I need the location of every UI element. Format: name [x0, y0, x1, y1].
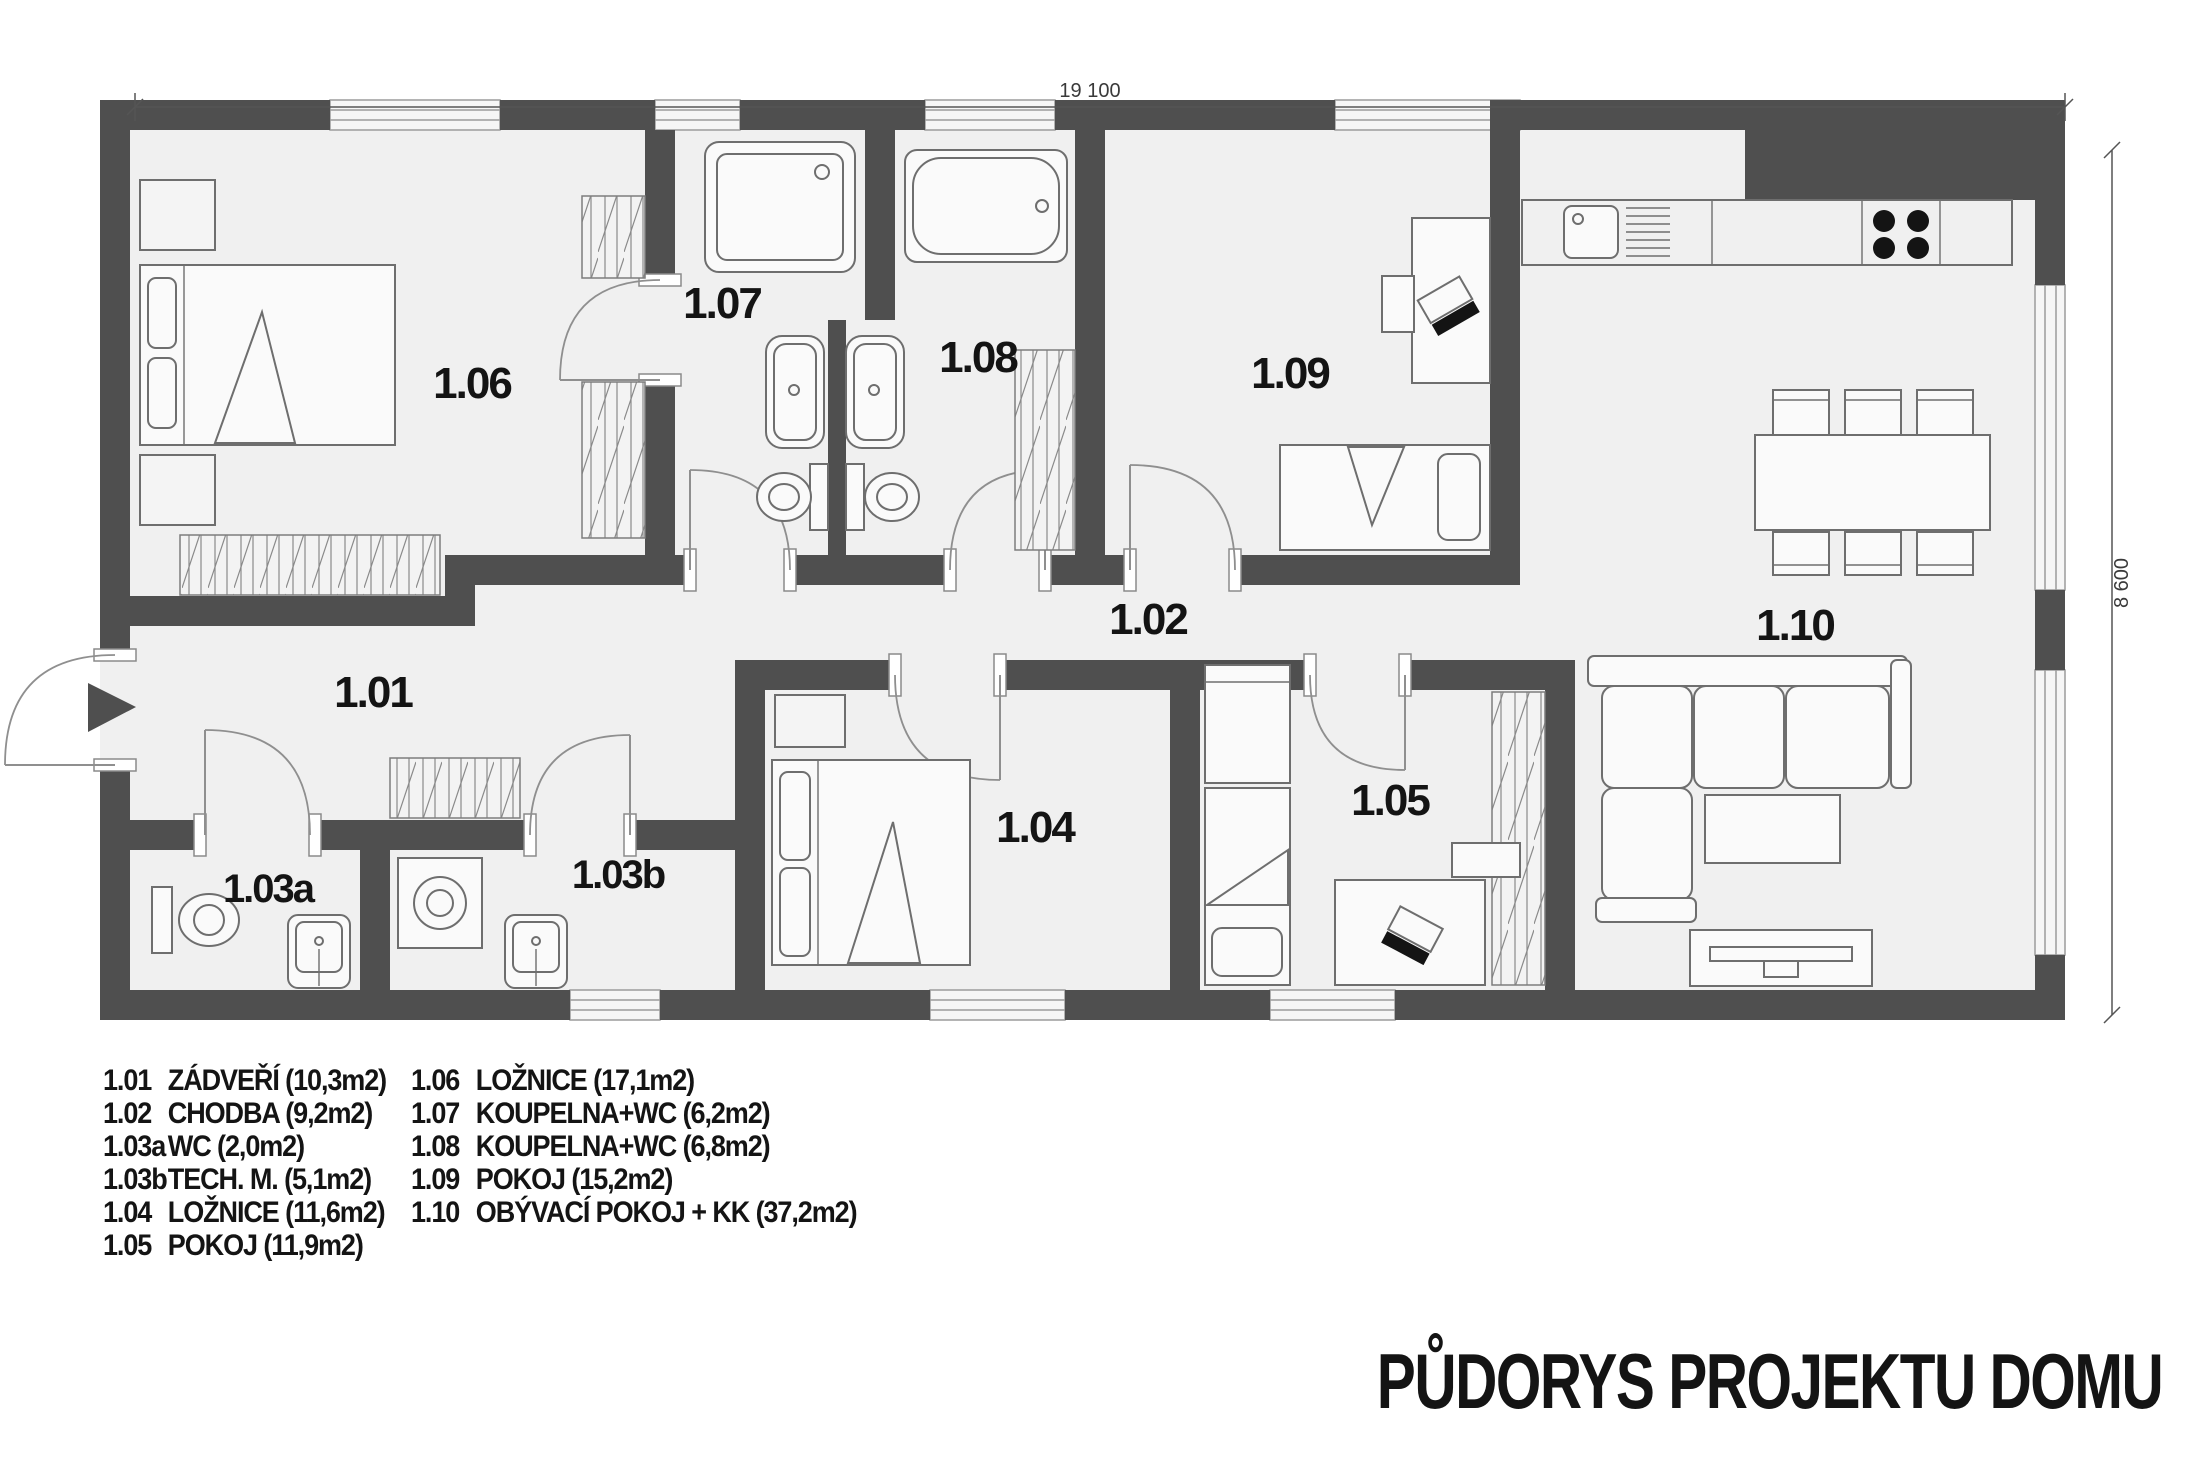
- room-label-1-05: 1.05: [1351, 776, 1430, 825]
- wardrobe-icon: [582, 196, 645, 278]
- legend-code: 1.10: [411, 1196, 476, 1230]
- chair-icon: [1845, 390, 1901, 435]
- dimension-width-label: 19 100: [1059, 80, 1120, 102]
- chair-icon: [1917, 532, 1973, 575]
- floorplan-page: 1.01 1.02 1.03a 1.03b 1.04 1.05 1.06 1.0…: [0, 0, 2190, 1460]
- legend-text: OBÝVACÍ POKOJ + KK (37,2m2): [476, 1196, 857, 1230]
- coffee-table-icon: [1705, 795, 1840, 863]
- room-label-1-07: 1.07: [683, 279, 761, 328]
- nightstand-icon: [775, 695, 845, 747]
- legend-text: KOUPELNA+WC (6,2m2): [476, 1097, 770, 1131]
- bathtub-icon: [905, 150, 1067, 262]
- kitchen-sink-icon: [1564, 206, 1618, 258]
- legend-code: 1.06: [411, 1064, 476, 1098]
- room-label-1-06: 1.06: [433, 359, 511, 408]
- legend-code: 1.07: [411, 1097, 476, 1131]
- room-label-1-09: 1.09: [1251, 349, 1329, 398]
- single-bed-icon: [1205, 788, 1290, 985]
- room-label-1-01: 1.01: [334, 668, 413, 717]
- chair-icon: [1845, 532, 1901, 575]
- legend-text: TECH. M. (5,1m2): [168, 1163, 371, 1197]
- chair-icon: [1773, 532, 1829, 575]
- legend-text: WC (2,0m2): [168, 1130, 304, 1164]
- legend-column-1: 1.01ZÁDVEŘÍ (10,3m2) 1.02CHODBA (9,2m2) …: [103, 1064, 418, 1262]
- nightstand-icon: [140, 455, 215, 525]
- legend-item-1-03b: 1.03bTECH. M. (5,1m2): [103, 1163, 386, 1196]
- washing-machine-icon: [398, 858, 482, 948]
- legend-item-1-01: 1.01ZÁDVEŘÍ (10,3m2): [103, 1064, 386, 1097]
- room-label-1-08: 1.08: [939, 333, 1018, 382]
- legend-item-1-10: 1.10OBÝVACÍ POKOJ + KK (37,2m2): [411, 1196, 857, 1229]
- legend-text: POKOJ (11,9m2): [168, 1229, 363, 1263]
- legend-text: LOŽNICE (17,1m2): [476, 1064, 694, 1098]
- legend-item-1-05: 1.05POKOJ (11,9m2): [103, 1229, 386, 1262]
- double-bed-icon: [772, 760, 970, 965]
- wardrobe-icon: [1015, 350, 1075, 550]
- dining-table-icon: [1755, 435, 1990, 530]
- room-label-1-10: 1.10: [1756, 601, 1834, 650]
- dimension-height-label: 8 600: [2111, 558, 2133, 608]
- legend-item-1-04: 1.04LOŽNICE (11,6m2): [103, 1196, 386, 1229]
- room-label-1-03a: 1.03a: [223, 867, 316, 911]
- sink-icon: [766, 336, 824, 448]
- legend-text: CHODBA (9,2m2): [168, 1097, 372, 1131]
- tv-stand-icon: [1690, 930, 1872, 986]
- single-bed-icon: [1280, 445, 1490, 550]
- sink-icon: [505, 915, 567, 988]
- legend-code: 1.01: [103, 1064, 168, 1098]
- chair-icon: [1382, 276, 1414, 332]
- legend-code: 1.02: [103, 1097, 168, 1131]
- chair-icon: [1773, 390, 1829, 435]
- legend-code: 1.09: [411, 1163, 476, 1197]
- wardrobe-icon: [582, 382, 645, 538]
- legend-text: ZÁDVEŘÍ (10,3m2): [168, 1064, 386, 1098]
- legend-item-1-03a: 1.03aWC (2,0m2): [103, 1130, 386, 1163]
- legend-code: 1.03b: [103, 1163, 168, 1197]
- room-label-1-04: 1.04: [996, 803, 1076, 852]
- shelf-icon: [1452, 843, 1520, 877]
- room-label-1-03b: 1.03b: [572, 853, 665, 897]
- wardrobe-icon: [180, 535, 440, 595]
- legend-item-1-09: 1.09POKOJ (15,2m2): [411, 1163, 857, 1196]
- legend-item-1-07: 1.07KOUPELNA+WC (6,2m2): [411, 1097, 857, 1130]
- shower-icon: [705, 142, 855, 272]
- legend-text: POKOJ (15,2m2): [476, 1163, 672, 1197]
- legend-item-1-08: 1.08KOUPELNA+WC (6,8m2): [411, 1130, 857, 1163]
- legend-item-1-02: 1.02CHODBA (9,2m2): [103, 1097, 386, 1130]
- dining-set: [1755, 390, 1990, 575]
- legend-column-2: 1.06LOŽNICE (17,1m2) 1.07KOUPELNA+WC (6,…: [411, 1064, 906, 1229]
- chair-icon: [1917, 390, 1973, 435]
- sink-icon: [846, 336, 904, 448]
- legend-code: 1.08: [411, 1130, 476, 1164]
- legend-text: KOUPELNA+WC (6,8m2): [476, 1130, 770, 1164]
- page-title: PŮDORYS PROJEKTU DOMU: [1377, 1336, 2162, 1427]
- double-bed-icon: [140, 265, 395, 445]
- legend-text: LOŽNICE (11,6m2): [168, 1196, 385, 1230]
- wardrobe-icon: [1492, 692, 1545, 985]
- nightstand-icon: [140, 180, 215, 250]
- legend-code: 1.04: [103, 1196, 168, 1230]
- room-label-1-02: 1.02: [1109, 595, 1187, 644]
- sink-icon: [288, 915, 350, 988]
- dimension-right: 8 600: [2104, 142, 2133, 1023]
- wardrobe-icon: [390, 758, 520, 818]
- legend-code: 1.03a: [103, 1130, 168, 1164]
- legend-code: 1.05: [103, 1229, 168, 1263]
- legend-item-1-06: 1.06LOŽNICE (17,1m2): [411, 1064, 857, 1097]
